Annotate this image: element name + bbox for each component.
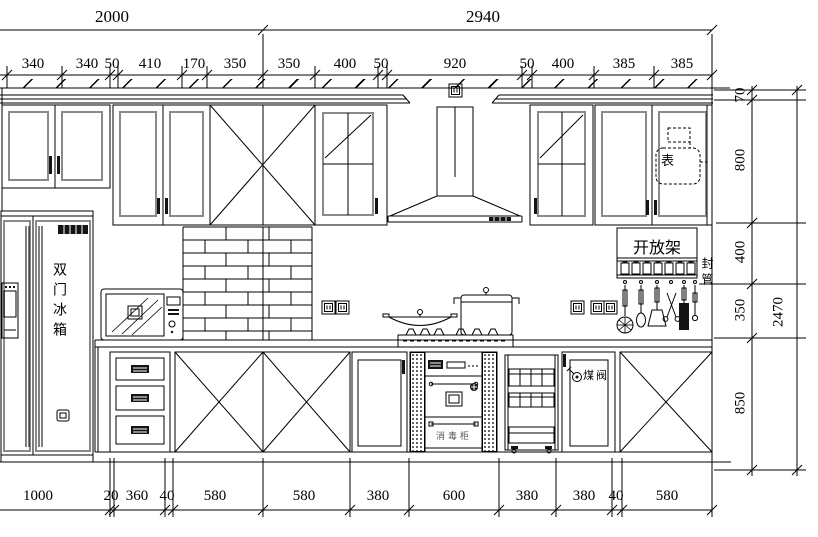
open-shelf-label: 开放架 bbox=[617, 234, 697, 258]
socket-icon bbox=[322, 301, 335, 314]
dim-top-seg: 170 bbox=[183, 57, 206, 72]
dim-top-seg: 920 bbox=[444, 57, 467, 72]
wall-cabinet-glass-right bbox=[530, 105, 593, 225]
dim-bottom-seg: 580 bbox=[656, 489, 679, 504]
dim-top-seg: 400 bbox=[334, 57, 357, 72]
boxed-pipe-label: 封管 bbox=[699, 257, 716, 289]
fridge-brand-badge-icon bbox=[58, 225, 88, 234]
refrigerator-label: 双门冰箱 bbox=[49, 262, 69, 342]
base-cabinet-cross-1 bbox=[175, 352, 263, 452]
wall-cabinet-double-door bbox=[113, 105, 210, 225]
wall-cabinet-right-double bbox=[595, 105, 712, 225]
dim-top-seg: 340 bbox=[76, 57, 99, 72]
dim-bottom-seg: 40 bbox=[160, 489, 175, 504]
socket-icon bbox=[336, 301, 349, 314]
brick-backsplash bbox=[183, 227, 312, 340]
dim-bottom-seg: 580 bbox=[204, 489, 227, 504]
refrigerator bbox=[1, 211, 93, 462]
dim-right-seg: 850 bbox=[734, 392, 749, 415]
gas-valve-label: 煤阀 bbox=[583, 367, 609, 383]
socket-icon bbox=[571, 301, 584, 314]
hood-brand-badge-icon bbox=[489, 217, 511, 221]
base-cabinet-cross-3 bbox=[620, 352, 712, 452]
base-cabinet-plain-door bbox=[352, 352, 407, 452]
dim-bottom-seg: 600 bbox=[443, 489, 466, 504]
dim-bottom-seg: 580 bbox=[293, 489, 316, 504]
wall-cabinet-over-fridge bbox=[2, 105, 110, 188]
kitchen-elevation-drawing: 2000 2940 340 340 50 410 170 350 350 400… bbox=[0, 0, 818, 537]
sterilizer-cabinet-label: 消毒柜 bbox=[436, 429, 472, 442]
spice-jars bbox=[621, 261, 695, 275]
hook-tool-icon bbox=[692, 285, 697, 321]
stock-pot bbox=[454, 288, 519, 336]
pull-out-basket-unit bbox=[505, 355, 558, 453]
dim-top-seg: 350 bbox=[278, 57, 301, 72]
dim-top-seg: 385 bbox=[671, 57, 694, 72]
microwave bbox=[101, 289, 183, 340]
socket-icon bbox=[604, 301, 617, 314]
dim-right-overall: 2470 bbox=[772, 297, 787, 327]
wok bbox=[383, 310, 457, 326]
dim-top-seg: 350 bbox=[224, 57, 247, 72]
ladle-icon bbox=[637, 285, 646, 327]
scissors-icon bbox=[663, 293, 680, 321]
gas-valve-icon bbox=[567, 367, 582, 382]
dim-top-seg: 50 bbox=[374, 57, 389, 72]
dim-bottom-seg: 1000 bbox=[23, 489, 53, 504]
dim-bottom-seg: 360 bbox=[126, 489, 149, 504]
dim-right-seg: 70 bbox=[734, 88, 749, 103]
drawer-bank bbox=[110, 352, 170, 452]
dim-right-seg: 350 bbox=[734, 299, 749, 322]
range-hood bbox=[388, 107, 522, 222]
countertop bbox=[95, 340, 712, 452]
dim-top-seg: 50 bbox=[520, 57, 535, 72]
socket-icon bbox=[591, 301, 604, 314]
skimmer-icon bbox=[617, 285, 633, 333]
dim-right-seg: 800 bbox=[734, 149, 749, 172]
gas-meter-label: 表 bbox=[661, 150, 674, 169]
base-cabinet-cross-2 bbox=[263, 352, 350, 452]
socket-icon bbox=[449, 84, 462, 97]
dim-top-seg: 385 bbox=[613, 57, 636, 72]
dim-bottom-seg: 20 bbox=[104, 489, 119, 504]
fridge-energy-label-icon bbox=[57, 410, 69, 421]
elevation-linework bbox=[0, 0, 818, 537]
gas-cooktop bbox=[398, 329, 513, 347]
dim-right-seg: 400 bbox=[734, 241, 749, 264]
dim-top-seg: 340 bbox=[22, 57, 45, 72]
dim-top-seg: 50 bbox=[105, 57, 120, 72]
cleaver-icon bbox=[679, 285, 689, 330]
dim-top-seg: 410 bbox=[139, 57, 162, 72]
dim-bottom-seg: 380 bbox=[573, 489, 596, 504]
wall-cabinet-cross bbox=[210, 105, 315, 225]
dim-top-overall-left: 2000 bbox=[95, 8, 129, 25]
dim-top-overall-right: 2940 bbox=[466, 8, 500, 25]
dim-bottom-seg: 380 bbox=[367, 489, 390, 504]
dim-bottom-seg: 40 bbox=[609, 489, 624, 504]
wall-cabinet-glass-left bbox=[315, 105, 387, 225]
dim-top-seg: 400 bbox=[552, 57, 575, 72]
dim-bottom-seg: 380 bbox=[516, 489, 539, 504]
hanging-utensils bbox=[617, 281, 698, 334]
water-dispenser bbox=[2, 283, 18, 338]
